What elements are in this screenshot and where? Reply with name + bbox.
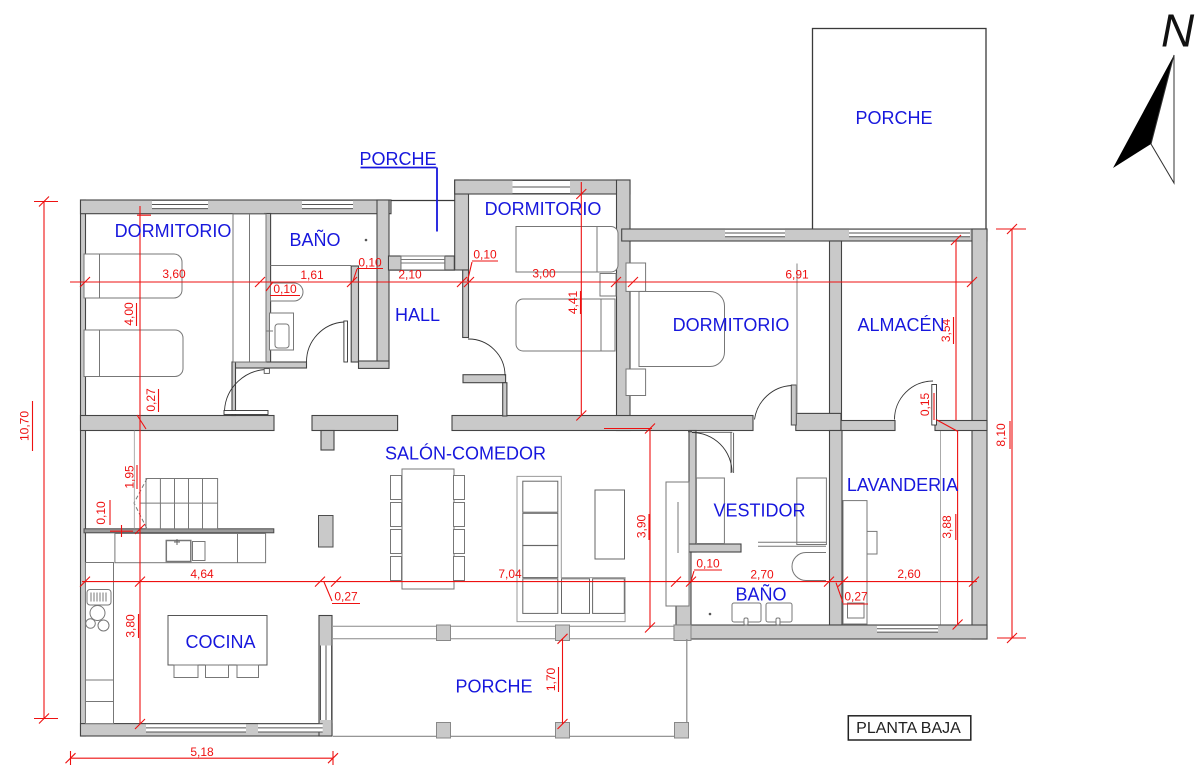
svg-text:3,80: 3,80 [124, 614, 138, 638]
svg-text:0,10: 0,10 [94, 501, 108, 525]
svg-text:0,27: 0,27 [844, 590, 868, 604]
svg-text:DORMITORIO: DORMITORIO [115, 221, 232, 241]
svg-text:0,27: 0,27 [334, 590, 358, 604]
svg-text:0,15: 0,15 [918, 392, 932, 416]
svg-text:2,10: 2,10 [398, 268, 422, 282]
svg-text:COCINA: COCINA [185, 632, 255, 652]
svg-text:2,60: 2,60 [897, 567, 921, 581]
svg-text:LAVANDERIA: LAVANDERIA [847, 475, 958, 495]
svg-text:10,70: 10,70 [18, 411, 32, 441]
svg-text:PORCHE: PORCHE [455, 677, 532, 697]
svg-text:3,90: 3,90 [635, 514, 649, 538]
svg-text:4,00: 4,00 [122, 302, 136, 326]
svg-text:PLANTA BAJA: PLANTA BAJA [856, 720, 961, 737]
svg-text:DORMITORIO: DORMITORIO [673, 315, 790, 335]
svg-text:0,10: 0,10 [696, 557, 720, 571]
svg-text:0,27: 0,27 [144, 388, 158, 412]
svg-text:BAÑO: BAÑO [289, 229, 340, 250]
svg-text:0,10: 0,10 [273, 282, 297, 296]
svg-text:PORCHE: PORCHE [359, 149, 436, 169]
svg-text:1,95: 1,95 [123, 465, 137, 489]
svg-text:3,88: 3,88 [940, 515, 954, 539]
svg-text:PORCHE: PORCHE [855, 108, 932, 128]
svg-text:3,00: 3,00 [532, 267, 556, 281]
svg-text:2,70: 2,70 [750, 568, 774, 582]
svg-text:N: N [1161, 5, 1195, 57]
svg-text:1,61: 1,61 [300, 268, 324, 282]
svg-text:3,60: 3,60 [162, 267, 186, 281]
svg-text:6,91: 6,91 [785, 268, 809, 282]
svg-text:VESTIDOR: VESTIDOR [713, 501, 805, 521]
svg-text:5,18: 5,18 [190, 745, 214, 759]
svg-text:ALMACÉN: ALMACÉN [857, 315, 944, 335]
svg-text:HALL: HALL [395, 305, 440, 325]
svg-text:0,10: 0,10 [358, 256, 382, 270]
svg-text:4,41: 4,41 [566, 290, 580, 314]
svg-text:0,10: 0,10 [473, 248, 497, 262]
svg-text:DORMITORIO: DORMITORIO [485, 199, 602, 219]
svg-text:BAÑO: BAÑO [735, 584, 786, 605]
svg-text:8,10: 8,10 [994, 423, 1008, 447]
svg-text:7,04: 7,04 [498, 567, 522, 581]
svg-text:4,64: 4,64 [190, 567, 214, 581]
svg-text:SALÓN-COMEDOR: SALÓN-COMEDOR [385, 443, 546, 464]
svg-text:1,70: 1,70 [544, 667, 558, 691]
